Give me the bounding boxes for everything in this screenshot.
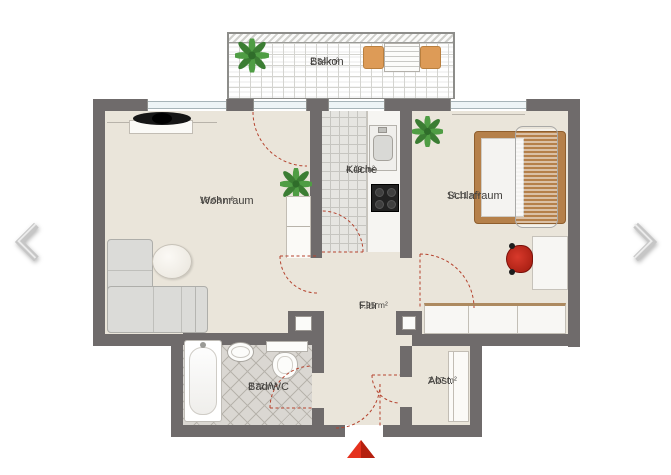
sofa-bottom (107, 286, 208, 333)
balcony-chair-right (420, 46, 441, 69)
bed-blanket (515, 126, 558, 228)
wall-segment (312, 408, 324, 437)
wall-segment (307, 99, 328, 111)
room-area: 3,72 m² (248, 381, 277, 391)
wall-segment (383, 425, 482, 437)
shelf-divider (453, 352, 454, 421)
toilet-bowl (272, 352, 298, 379)
room-area: 2,54 m² (310, 56, 339, 66)
room-area: 14,11 m² (447, 190, 480, 200)
shelf-wohnraum (286, 196, 311, 258)
wardrobe (424, 303, 566, 334)
chair-knob (509, 243, 515, 249)
wall-segment (568, 99, 580, 347)
room-area: 4,49 m² (346, 164, 375, 174)
wall-segment (93, 99, 105, 346)
coffee-table (152, 244, 192, 279)
bathroom-sink (227, 342, 254, 362)
chair-knob (509, 269, 515, 275)
toilet-cistern (266, 341, 308, 352)
chevron-left-icon[interactable] (12, 219, 42, 265)
wall-segment (400, 111, 412, 258)
room-area: 5,95 m² (359, 300, 388, 310)
bathtub-inner (189, 347, 217, 415)
burner (387, 200, 396, 209)
burner (387, 188, 396, 197)
plant-schlafraum (412, 115, 443, 148)
wall-segment (93, 334, 183, 346)
window-sill-line (452, 114, 525, 115)
room-kueche-floor (322, 111, 368, 252)
wall-segment (400, 346, 412, 377)
wall-segment (385, 99, 450, 111)
entrance-arrow-icon (346, 439, 376, 459)
floor-plan-viewer: Balkon 2,54 m² Wohnraum 18,68 m² Küche 4… (0, 0, 671, 475)
chevron-right-icon[interactable] (630, 219, 660, 265)
window-schlafraum (450, 99, 527, 111)
kitchen-sink-basin (373, 135, 393, 161)
room-area: 18,68 m² (200, 195, 234, 205)
room-area: 2,07 m² (428, 375, 457, 385)
stove (371, 184, 399, 212)
balcony-chair-left (363, 46, 384, 69)
duct-shaft-left-inner (295, 316, 312, 331)
balcony-door (253, 99, 307, 111)
duct-shaft-right-inner (402, 316, 416, 330)
tub-faucet (200, 342, 206, 348)
balcony-table (384, 43, 420, 72)
window-wohnraum (147, 99, 227, 111)
kitchen-tap (378, 127, 387, 133)
burner (375, 188, 384, 197)
wall-segment (400, 407, 412, 425)
burner (375, 200, 384, 209)
shelf-divider (287, 226, 310, 227)
plant-balcony (235, 38, 269, 73)
tv (133, 112, 191, 125)
wall-segment (227, 99, 253, 111)
desk-chair (506, 245, 533, 273)
desk (532, 236, 568, 290)
wall-segment (171, 334, 183, 437)
wall-segment (470, 346, 482, 437)
window-kueche (328, 99, 385, 111)
wall-segment (312, 333, 324, 373)
wall-segment (412, 334, 580, 346)
